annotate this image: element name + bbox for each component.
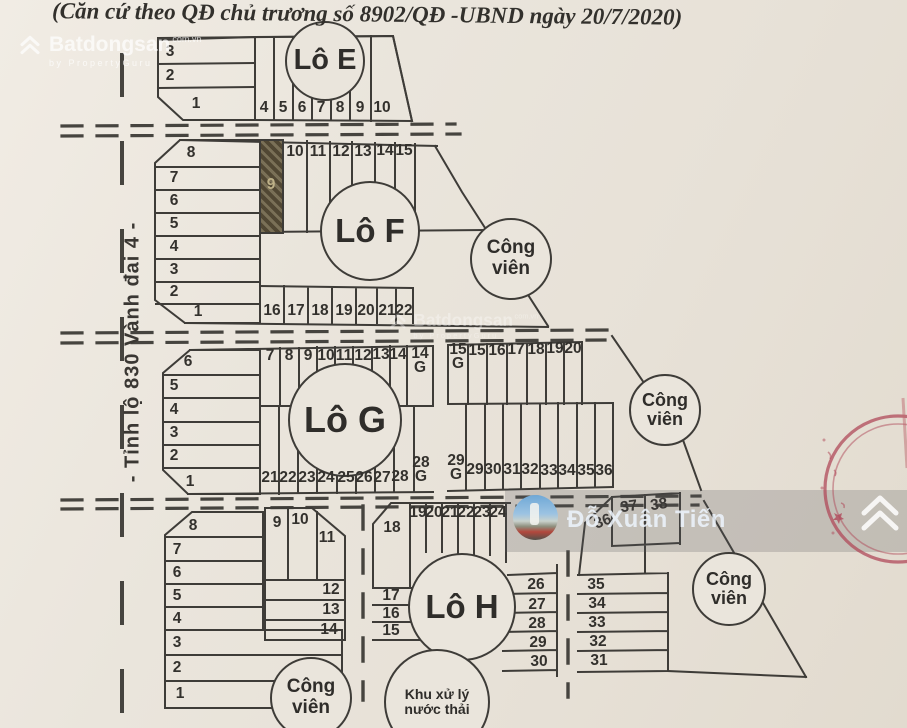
red-stamp-arc <box>0 0 907 728</box>
land-plot-map: Lô ELô FLô GLô HCôngviênCôngviênCôngviên… <box>0 0 907 728</box>
